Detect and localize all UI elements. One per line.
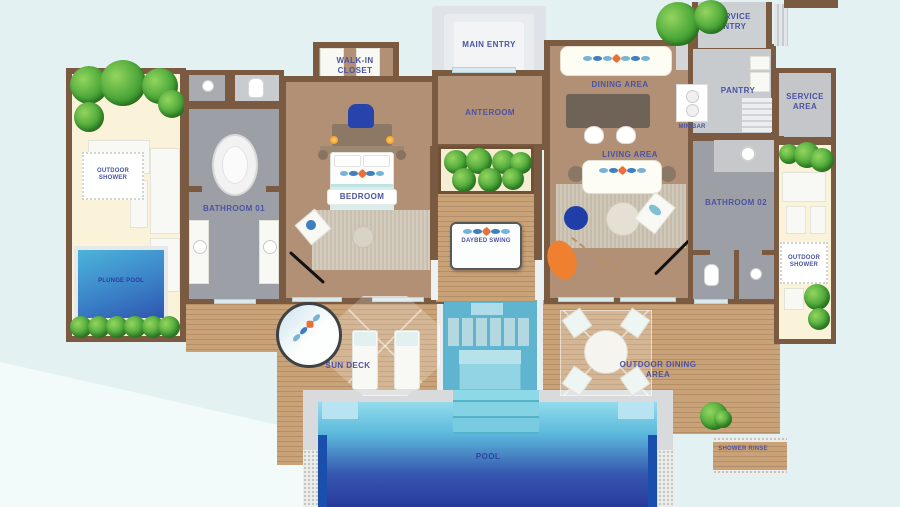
bed-cushions — [340, 168, 384, 178]
plunge-pool-label: PLUNGE POOL — [78, 278, 164, 285]
sun-deck-label: SUN DECK — [288, 361, 408, 371]
wall-stub — [784, 0, 838, 8]
plunge-pool: PLUNGE POOL — [74, 246, 168, 322]
toilet-icon — [704, 264, 719, 286]
sliding-door — [214, 299, 256, 304]
nightstand — [318, 150, 328, 160]
sink-icon — [263, 240, 277, 254]
nightstand — [396, 150, 406, 160]
dining-table — [566, 94, 650, 128]
water-lounger — [490, 318, 501, 346]
bedroom-label: BEDROOM — [328, 190, 396, 204]
sink-icon — [740, 146, 756, 162]
sliding-door — [292, 297, 342, 302]
minibar-label: MINIBAR — [672, 124, 712, 131]
bush-icon — [158, 316, 180, 338]
dining-chair — [584, 126, 604, 144]
minibar-sink — [686, 90, 699, 103]
outdoor-dining-label: OUTDOOR DINING AREA — [616, 360, 700, 381]
villa-floor-plan: SHOWER RINSE POOL OUTDOOR SHOWER PLUNGE … — [0, 0, 900, 507]
bush-icon — [808, 308, 830, 330]
lamp-icon — [386, 136, 394, 144]
blue-pouf — [564, 206, 588, 230]
shower-rinse-label: SHOWER RINSE — [716, 446, 770, 453]
walk-in-closet-label: WALK-IN CLOSET — [320, 56, 390, 77]
deck-mat — [782, 172, 826, 202]
bush-icon — [502, 168, 524, 190]
outdoor-shower-right-label: OUTDOOR SHOWER — [782, 255, 826, 269]
sliding-door — [694, 299, 728, 304]
tree-icon — [74, 102, 104, 132]
banquette-cushions — [561, 55, 671, 62]
tree-icon — [100, 60, 146, 106]
bathroom-02-label: BATHROOM 02 — [690, 198, 782, 208]
deck-mat — [784, 288, 804, 310]
pool-corner-step — [322, 402, 358, 419]
pool-corner-step — [618, 402, 654, 419]
minibar-sink — [686, 104, 699, 117]
bathtub-inner — [222, 146, 248, 184]
palm-icon — [714, 410, 732, 428]
banquette — [560, 46, 672, 76]
lamp-icon — [330, 136, 338, 144]
anteroom-label: ANTEROOM — [440, 108, 540, 118]
toilet-icon — [248, 78, 264, 98]
water-daybed-head — [459, 350, 521, 364]
daybed-swing: DAYBED SWING — [450, 222, 522, 270]
tree-icon — [694, 0, 728, 34]
outdoor-shower-pad: OUTDOOR SHOWER — [780, 242, 828, 284]
wall-stub — [688, 250, 710, 255]
appliance — [750, 56, 770, 70]
daybed-pillows — [282, 304, 329, 351]
pool-edge — [318, 435, 327, 507]
water-lounger — [462, 318, 473, 346]
pool-step — [453, 402, 539, 418]
bush-icon — [478, 168, 502, 192]
rail — [535, 260, 542, 300]
sliding-door — [620, 297, 676, 302]
umbrella-icon — [330, 296, 440, 396]
deck-mat — [786, 206, 806, 234]
bathroom-01-label: BATHROOM 01 — [186, 204, 282, 214]
dining-area-label: DINING AREA — [570, 80, 670, 90]
lounger-pillow — [396, 332, 418, 346]
pantry-label: PANTRY — [706, 86, 770, 96]
water-ledge — [471, 303, 503, 315]
tree-icon — [656, 2, 700, 46]
wall — [534, 146, 542, 260]
pebble-edge — [713, 470, 787, 475]
bush-icon — [452, 168, 476, 192]
channel-rail — [537, 300, 543, 390]
water-lounger — [518, 318, 529, 346]
daybed-swing-label: DAYBED SWING — [452, 238, 520, 245]
round-daybed — [276, 302, 342, 368]
water-lounger — [504, 318, 515, 346]
water-lounger — [476, 318, 487, 346]
wall-stub — [734, 250, 739, 300]
shower-head-icon — [750, 268, 762, 280]
side-table — [660, 166, 676, 182]
pool-edge — [648, 435, 657, 507]
living-area-label: LIVING AREA — [580, 150, 680, 160]
wall-stub — [184, 186, 202, 192]
shower-head-icon — [202, 80, 214, 92]
service-entry-steps — [774, 4, 788, 46]
lounger-pillow — [354, 332, 376, 346]
outdoor-shower-pad: OUTDOOR SHOWER — [82, 152, 144, 200]
deck-mat — [150, 148, 180, 234]
deck-mat — [810, 206, 826, 234]
tree-icon — [804, 284, 830, 310]
pillow — [363, 155, 390, 167]
sliding-door — [558, 297, 614, 302]
outdoor-shower-left-label: OUTDOOR SHOWER — [84, 168, 142, 182]
wall — [430, 146, 438, 260]
desk-chair — [348, 104, 374, 128]
sink-icon — [193, 240, 207, 254]
pouf — [352, 226, 374, 248]
rail — [431, 260, 438, 300]
sofa — [582, 160, 662, 194]
service-area-label: SERVICE AREA — [778, 92, 832, 113]
pebble-edge — [658, 450, 673, 507]
dining-chair — [616, 126, 636, 144]
entry-door — [452, 67, 516, 73]
daybed-cushions — [452, 228, 520, 235]
tree-icon — [810, 148, 834, 172]
pool-label: POOL — [440, 452, 536, 462]
main-entry-label: MAIN ENTRY — [462, 40, 516, 50]
pool-step — [453, 418, 539, 434]
pantry-steps — [742, 98, 772, 132]
pillow — [334, 155, 361, 167]
pebble-edge — [303, 450, 318, 507]
water-lounger — [448, 318, 459, 346]
pebble-edge — [713, 437, 787, 442]
sofa-cushions — [583, 167, 661, 174]
tree-icon — [158, 90, 186, 118]
